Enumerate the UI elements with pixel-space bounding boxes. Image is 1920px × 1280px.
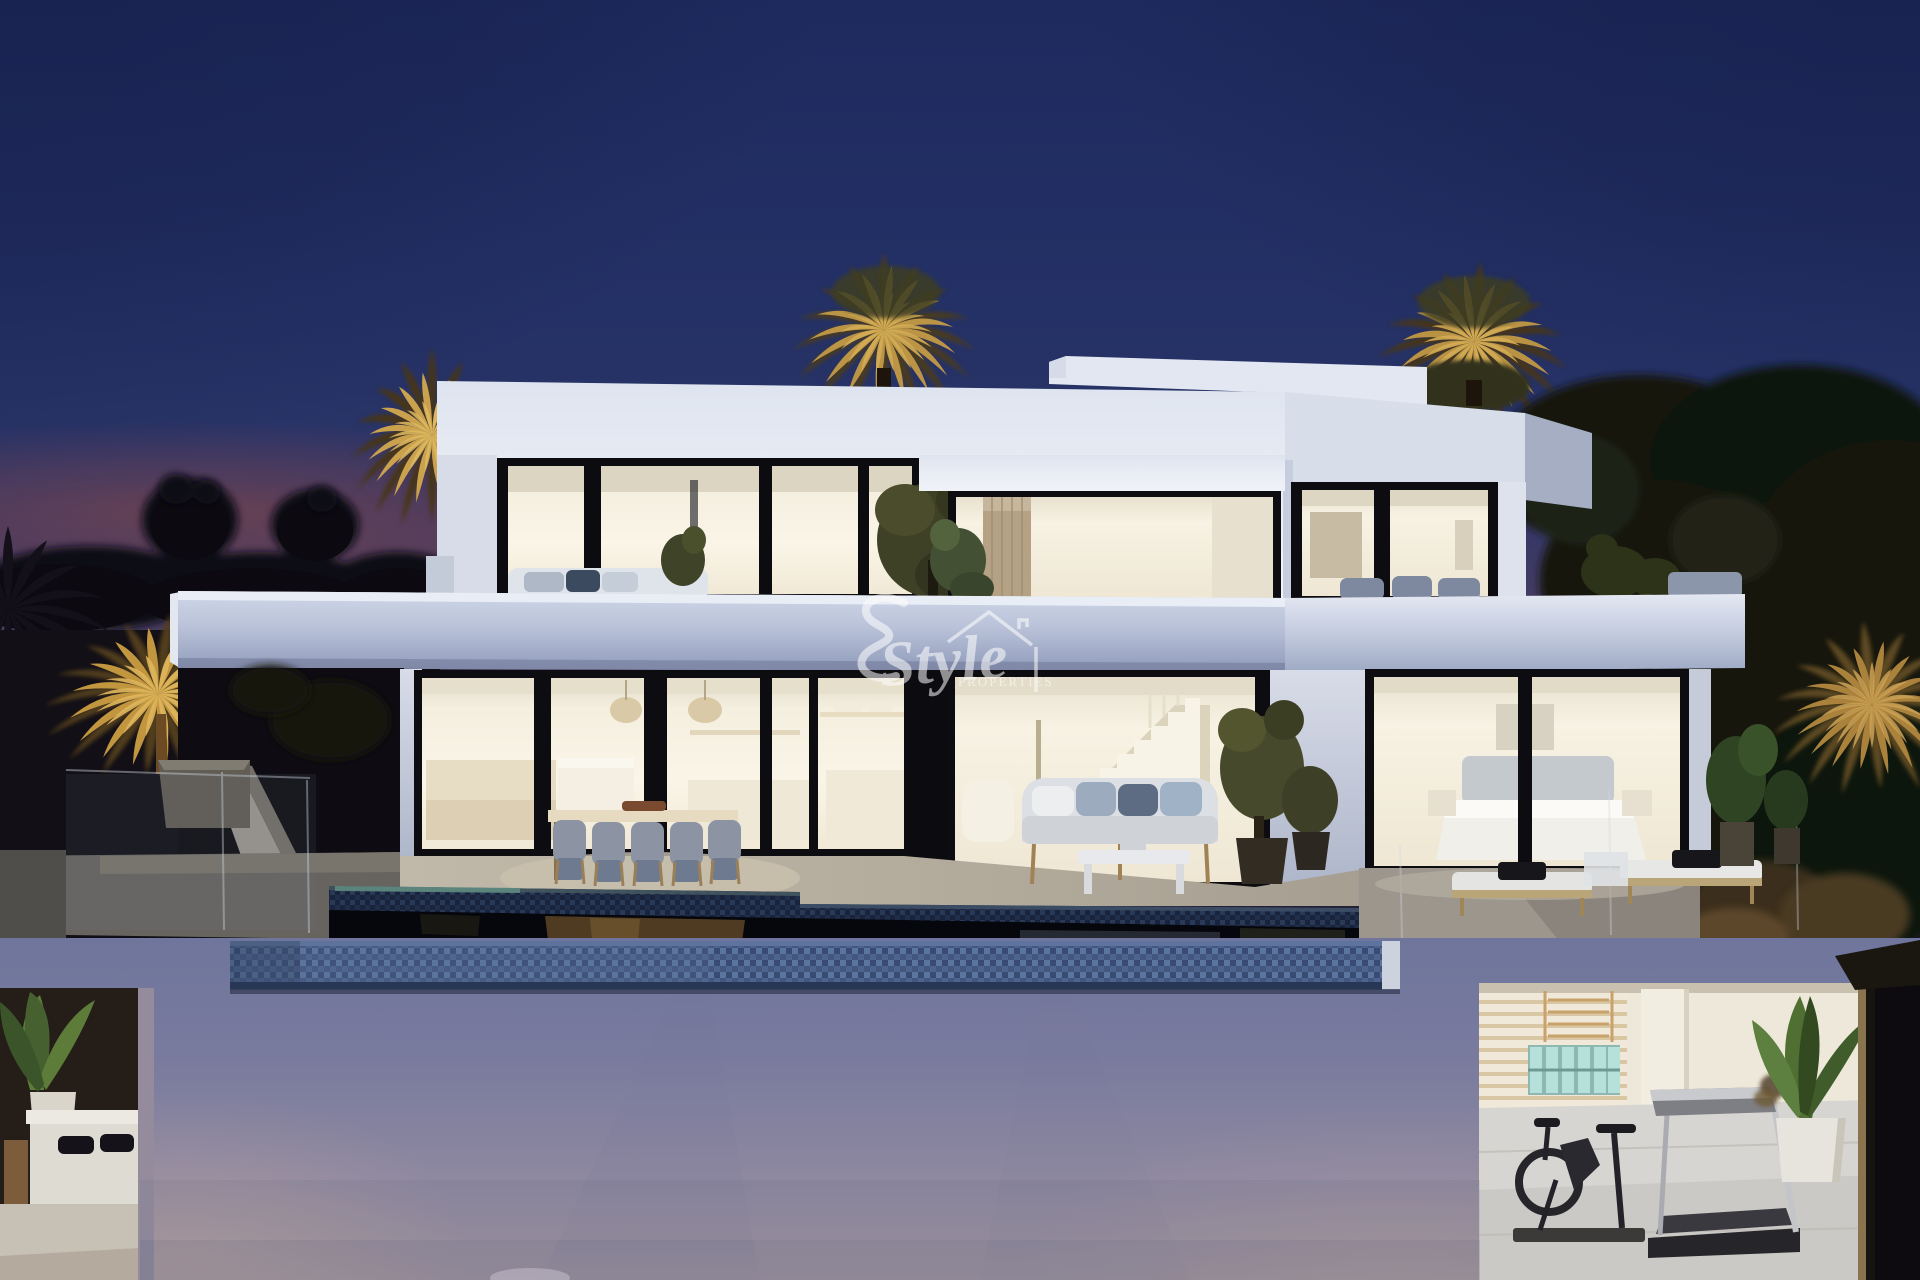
svg-text:PROPERTIES: PROPERTIES <box>958 674 1054 689</box>
